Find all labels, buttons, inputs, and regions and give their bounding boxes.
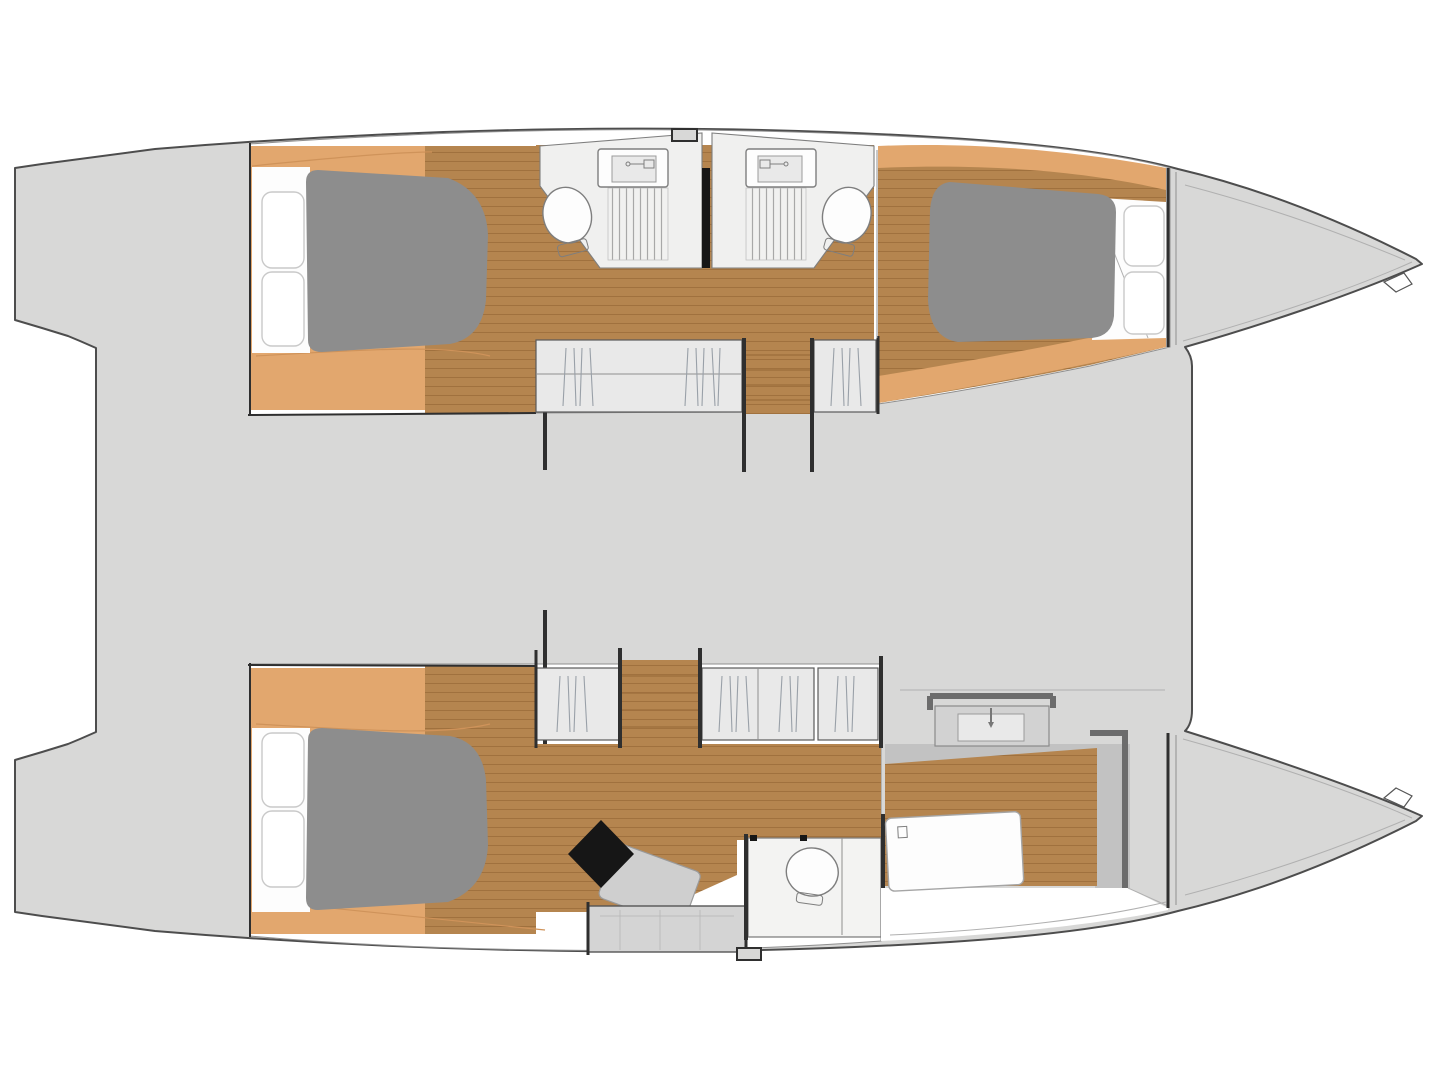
- island-berth-mattress: [306, 170, 488, 352]
- pillow: [262, 192, 304, 268]
- deck-hatch-icon: [737, 948, 761, 960]
- pillow: [262, 811, 304, 887]
- pillow: [262, 733, 304, 807]
- stb-bench-locker: [588, 902, 761, 960]
- deck-hatch-icon: [672, 129, 697, 141]
- island-berth-mattress: [306, 728, 488, 910]
- island-berth-mattress: [928, 182, 1116, 342]
- catamaran-floor-plan: [0, 0, 1440, 1080]
- companionway-steps: [746, 340, 810, 414]
- pillow: [262, 272, 304, 346]
- floor-plan-svg: [0, 0, 1440, 1080]
- shower-grating: [746, 188, 806, 260]
- bathroom-divider-wall: [702, 168, 710, 268]
- companionway-steps: [622, 660, 698, 744]
- shower-grating: [608, 188, 668, 260]
- pillow: [1124, 272, 1164, 334]
- pillow: [1124, 206, 1164, 266]
- shower-locker-unit: [885, 811, 1024, 891]
